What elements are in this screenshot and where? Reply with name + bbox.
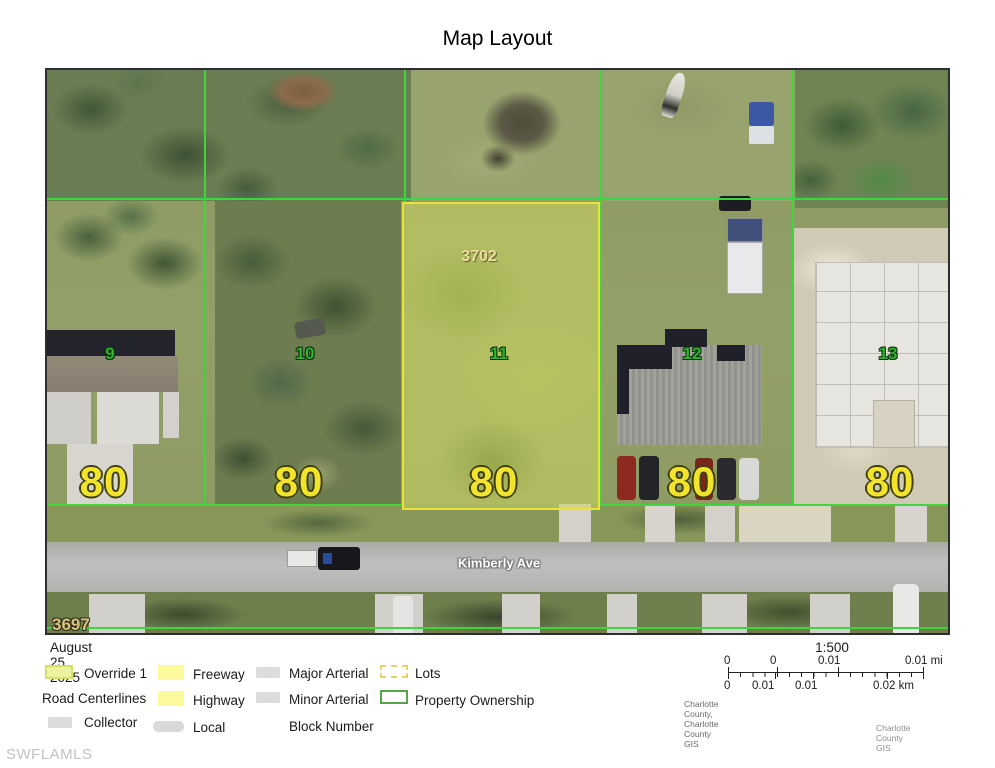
dead-tree xyxy=(462,70,582,188)
parcel-line-vertical-2 xyxy=(404,70,406,204)
parcel-line-road-south xyxy=(47,627,950,629)
legend-label-highway: Highway xyxy=(193,693,245,708)
major-arterial-swatch-icon xyxy=(256,667,280,678)
lot-width-label: 80 xyxy=(866,458,915,506)
lot12-rv-body xyxy=(727,242,763,294)
scale-tick xyxy=(777,667,778,673)
road-truck-cargo xyxy=(323,553,332,564)
lot-number-label: 13 xyxy=(879,344,898,364)
lot9-house-white-section xyxy=(47,392,91,444)
legend-label-road-centerlines: Road Centerlines xyxy=(42,691,146,706)
block-number-label: 3697 xyxy=(52,615,90,635)
parcel-line-vertical-4 xyxy=(792,70,794,506)
pickup-truck-bed xyxy=(749,126,774,144)
scale-tick xyxy=(838,667,839,673)
page-title: Map Layout xyxy=(0,27,995,51)
lot12-parked-car-red xyxy=(617,456,636,500)
lots-swatch-icon xyxy=(380,665,408,678)
aerial-map: 3702 9 10 11 12 13 80 80 80 80 80 Kimber… xyxy=(45,68,950,635)
parcel-id-label: 3702 xyxy=(461,248,497,266)
scale-km-tick-label: 0.01 xyxy=(752,680,774,692)
road-trailer xyxy=(287,550,317,567)
legend-label-block-number: Block Number xyxy=(289,719,374,734)
parcel-line-horizontal-top xyxy=(47,198,950,200)
lot12-parked-car-white xyxy=(739,458,759,500)
driveway xyxy=(645,504,675,542)
property-ownership-swatch-icon xyxy=(380,690,408,704)
lot12-house-dark-section xyxy=(617,345,672,369)
lot9-house-white-section xyxy=(163,392,179,438)
scale-tick xyxy=(887,672,888,679)
lot12-rv-roof xyxy=(727,218,763,242)
override-swatch-icon xyxy=(45,665,73,679)
collector-swatch-icon xyxy=(48,717,72,728)
parcel-line-vertical-3 xyxy=(600,70,602,506)
tree-canopy-top-right xyxy=(795,70,950,208)
parked-white-car xyxy=(393,596,413,635)
lot12-house-dark-section xyxy=(717,345,745,361)
lot13-foundation-notch xyxy=(873,400,915,448)
scale-ratio: 1:500 xyxy=(806,640,858,655)
legend-label-property-ownership: Property Ownership xyxy=(415,693,534,708)
local-swatch-icon xyxy=(153,721,184,732)
scale-tick xyxy=(775,672,776,679)
legend-label-local: Local xyxy=(193,720,225,735)
legend-label-override: Override 1 xyxy=(84,666,147,681)
watermark: SWFLAMLS xyxy=(6,746,93,763)
map-layout-page: Map Layout xyxy=(0,0,995,768)
tree-canopy-top-left xyxy=(47,70,411,201)
map-attribution: Charlotte County, Charlotte County GIS xyxy=(684,699,719,749)
lot9-house-white-section xyxy=(97,392,159,444)
scale-tick xyxy=(813,672,814,679)
scale-bar-minor-ticks xyxy=(728,673,924,677)
lot-number-label: 9 xyxy=(105,344,114,364)
scale-km-tick-label: 0.01 xyxy=(795,680,817,692)
highway-swatch-icon xyxy=(158,691,184,706)
legend-label-collector: Collector xyxy=(84,715,137,730)
legend-label-freeway: Freeway xyxy=(193,667,245,682)
lot12-parked-car-black xyxy=(639,456,659,500)
minor-arterial-swatch-icon xyxy=(256,692,280,703)
scale-tick xyxy=(728,672,729,679)
street-name-label: Kimberly Ave xyxy=(458,556,540,571)
lot-width-label: 80 xyxy=(470,458,519,506)
parcel-line-vertical-1 xyxy=(204,70,206,506)
driveway xyxy=(705,504,735,542)
freeway-swatch-icon xyxy=(158,665,184,680)
scale-tick xyxy=(923,672,924,679)
pickup-truck-cab xyxy=(749,102,774,126)
gis-credit: Charlotte County GIS xyxy=(876,723,911,753)
lot-width-label: 80 xyxy=(275,458,324,506)
legend-label-minor-arterial: Minor Arterial xyxy=(289,692,369,707)
lot9-trees xyxy=(47,201,215,305)
scale-km-tick-label: 0 xyxy=(724,680,730,692)
driveway xyxy=(895,504,927,542)
legend-label-major-arterial: Major Arterial xyxy=(289,666,369,681)
lot12-house-dark-section xyxy=(617,369,629,414)
legend-label-lots: Lots xyxy=(415,666,441,681)
dirt-patch xyxy=(255,70,351,124)
lot-number-label: 12 xyxy=(683,344,702,364)
lot-width-label: 80 xyxy=(668,458,717,506)
scale-bar xyxy=(728,666,924,680)
scale-km-tick-label: 0.02 km xyxy=(873,680,914,692)
sand-apron xyxy=(739,504,831,542)
lot-number-label: 10 xyxy=(296,344,315,364)
lot-number-label: 11 xyxy=(490,344,508,364)
lot-width-label: 80 xyxy=(80,458,129,506)
lot12-parked-car-dark xyxy=(717,458,736,500)
